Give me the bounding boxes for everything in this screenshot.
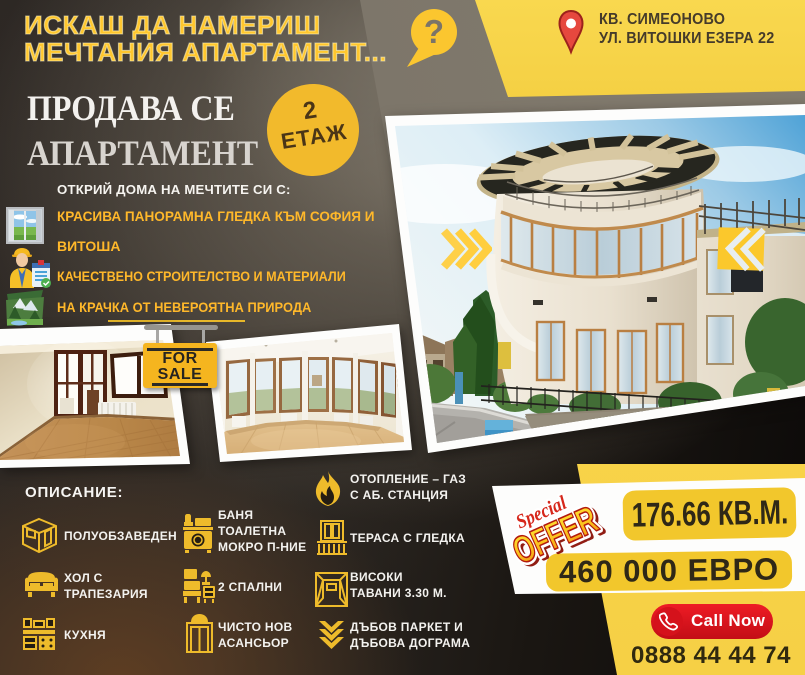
svg-text:?: ? — [424, 13, 444, 50]
